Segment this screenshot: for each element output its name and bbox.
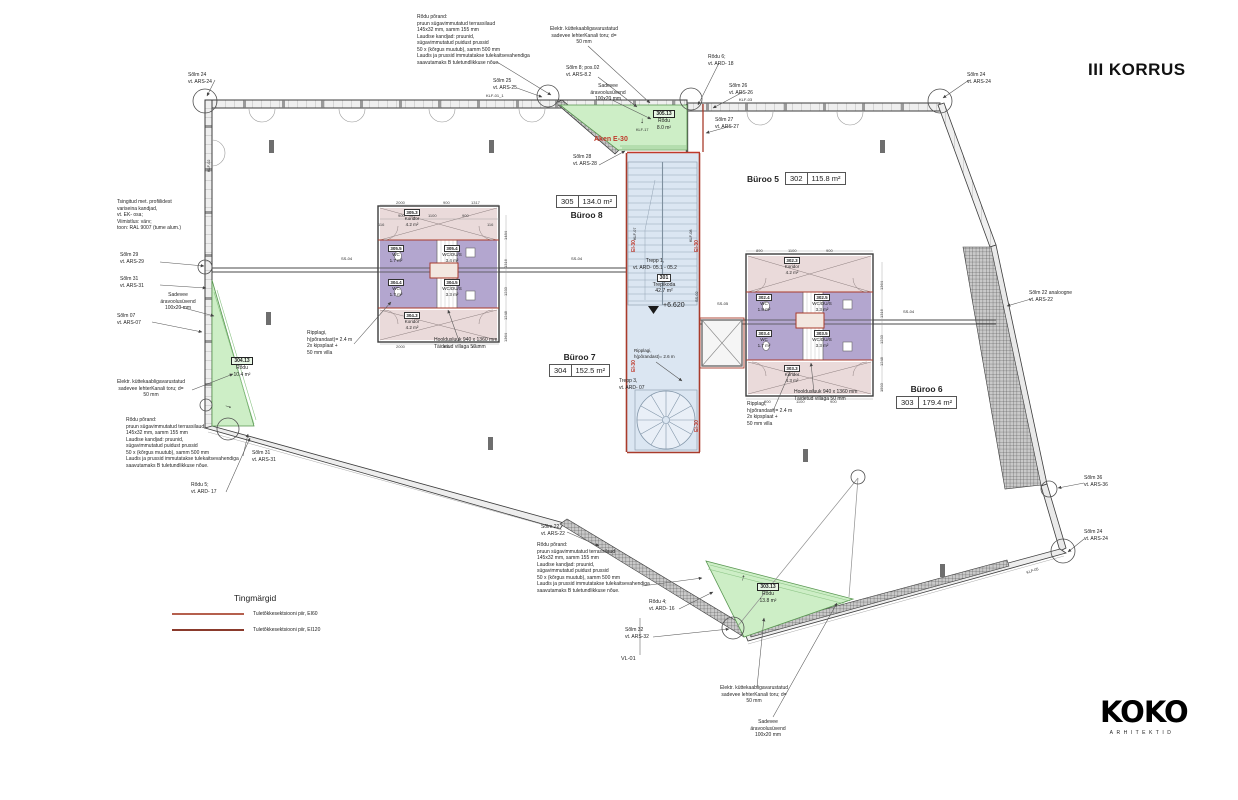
dimension-value: 116 bbox=[487, 222, 493, 227]
annotation-note: Sõlm 31 vt. ARS-31 bbox=[252, 450, 276, 463]
core-room-area: 4.2 m² bbox=[406, 222, 419, 227]
dimension-value: 1316 bbox=[503, 259, 508, 268]
dimension-value: 900 bbox=[462, 213, 469, 218]
dimension-value: 900 bbox=[764, 399, 771, 404]
core-room-tag: 305.3 Koridor 4.2 m² bbox=[390, 209, 434, 227]
dimension-value: 1248 bbox=[503, 311, 508, 320]
dimension-value: 900 bbox=[826, 248, 833, 253]
annotation-note: Aken E-30 bbox=[594, 135, 628, 144]
room-number-area-box: 305 134.0 m² bbox=[556, 195, 617, 208]
core-room-area: 1.7 m² bbox=[390, 258, 403, 263]
core-room-tag: 302.4 WC 1.8 m² bbox=[742, 294, 786, 312]
legend-line-swatch bbox=[172, 613, 244, 615]
annotation-note: EI-30 bbox=[631, 240, 638, 252]
annotation-note: Sõlm 22 analoogne vt. ARS-22 bbox=[1029, 290, 1072, 303]
annotation-note: SS-04 bbox=[571, 256, 582, 261]
core-room-tag: 305.4 WC/DU/S 3.4 m² bbox=[430, 245, 474, 263]
core-room-tag: 302.3 Koridor 4.2 m² bbox=[770, 257, 814, 275]
annotation-note: Sõlm 26 vt. ARS-26 bbox=[729, 83, 753, 96]
annotation-note: Sõlm 36 vt. ARS-36 bbox=[1084, 475, 1108, 488]
room-number: 302 bbox=[786, 173, 808, 184]
room-name: Büroo 5 bbox=[747, 174, 779, 184]
core-room-area: 3.3 m² bbox=[446, 292, 459, 297]
annotation-note: Tsingitud met. profiilidest variseina ka… bbox=[117, 199, 222, 232]
room-number: 303 bbox=[897, 397, 919, 408]
annotation-note: Trepp 3, vt. ARD- 07 bbox=[619, 378, 645, 391]
room-number: 305 bbox=[557, 196, 579, 207]
core-room-tag: 305.5 WC 1.7 m² bbox=[374, 245, 418, 263]
annotation-note: Sadevee äravoolusüvend 100x20 mm bbox=[576, 83, 640, 103]
legend-items: Tuletõkkesektsiooni piir, EI60 Tuletõkke… bbox=[172, 611, 320, 633]
annotation-note: Ripplagi, h(põrandast)= 2.4 m 2x kipspla… bbox=[307, 330, 352, 356]
core-room-tag: 304.3 Koridor 4.2 m² bbox=[390, 312, 434, 330]
dimension-value: 1248 bbox=[879, 357, 884, 366]
balcony-area: 8.0 m² bbox=[657, 125, 671, 131]
balcony-tag: 303.13 Rõdu 13.8 m² bbox=[748, 583, 788, 604]
core-room-tag: 301 Trepikoda 42.7 m² bbox=[642, 274, 686, 295]
annotation-note: Rõdu 5; vt. ARD- 17 bbox=[191, 482, 217, 495]
logo-subtitle: ARHITEKTID bbox=[1100, 730, 1184, 736]
room-tag: Büroo 8 305 134.0 m² bbox=[556, 195, 617, 220]
core-room-number: 302.3 bbox=[784, 257, 800, 264]
room-name: Büroo 7 bbox=[564, 352, 596, 362]
core-room-number: 305.3 bbox=[404, 209, 420, 216]
dimension-value: 1100 bbox=[788, 248, 797, 253]
annotation-note: Elektr. küttekaabligavarustatud sadevee … bbox=[528, 26, 640, 46]
elevator bbox=[700, 318, 744, 368]
balcony-area: 13.8 m² bbox=[760, 598, 777, 604]
annotation-note: Sõlm 29 vt. ARS-29 bbox=[120, 252, 144, 265]
dimension-value: 1100 bbox=[796, 399, 805, 404]
dimension-value: 2000 bbox=[396, 200, 405, 205]
annotation-note: ↓ bbox=[640, 116, 644, 126]
annotation-note: Ripplagi, h(põrandast)= 2.4 m 2x kipspla… bbox=[747, 401, 792, 427]
core-room-tag: 303.5 WC/DU/S 3.3 m² bbox=[800, 330, 844, 348]
core-room-area: 1.7 m² bbox=[758, 343, 771, 348]
room-number-area-box: 304 152.5 m² bbox=[549, 364, 610, 377]
logo: KOKO ARHITEKTID bbox=[1100, 698, 1184, 736]
page-title: III KORRUS bbox=[1088, 60, 1186, 80]
door-arcs bbox=[212, 109, 863, 166]
dimension-value: 1317 bbox=[471, 344, 480, 349]
annotation-note: SS-05 bbox=[717, 301, 728, 306]
legend-line-swatch bbox=[172, 629, 244, 631]
core-room-tag: 303.3 Koridor 4.3 m² bbox=[770, 365, 814, 383]
dimension-value: 116 bbox=[378, 222, 384, 227]
annotation-note: Rõdu 4; vt. ARD- 16 bbox=[649, 599, 675, 612]
shower-icon bbox=[843, 300, 852, 309]
room-tag: Büroo 5 302 115.8 m² bbox=[747, 172, 846, 185]
core-room-number: 303.3 bbox=[784, 365, 800, 372]
annotation-note: Rõdu põrand: pruun sügavimmutatud terras… bbox=[537, 542, 689, 594]
annotation-note: KLF-01_1 bbox=[486, 93, 504, 98]
room-number: 304 bbox=[550, 365, 572, 376]
dimension-value: 900 bbox=[443, 344, 450, 349]
core-room-area: 4.2 m² bbox=[406, 325, 419, 330]
annotation-note: Trepp 1, vt. ARD- 05.1 - 05.2 bbox=[622, 258, 688, 271]
core-room-area: 4.2 m² bbox=[786, 270, 799, 275]
room-name: Büroo 6 bbox=[911, 384, 943, 394]
annotation-note: EI-30 bbox=[694, 420, 701, 432]
annotation-note: Sõlm 31 vt. ARS-31 bbox=[120, 276, 144, 289]
annotation-note: KLF-03 bbox=[739, 97, 752, 102]
balcony-number: 303.13 bbox=[757, 583, 778, 591]
annotation-note: KLF-02 bbox=[207, 160, 212, 172]
annotation-note: SS-02 bbox=[695, 291, 700, 302]
annotation-note: Sadevee äravoolusüvend 100x20 mm bbox=[736, 719, 800, 739]
core-room-number: 304.5 bbox=[444, 279, 460, 286]
core-room-number: 301 bbox=[657, 274, 671, 282]
core-room-area: 4.3 m² bbox=[786, 378, 799, 383]
annotation-note: KLF-17 bbox=[636, 128, 648, 133]
balcony-number: 304.13 bbox=[231, 357, 252, 365]
annotation-note: EI-30 bbox=[694, 240, 701, 252]
legend: Tingmärgid Tuletõkkesektsiooni piir, EI6… bbox=[172, 593, 320, 643]
annotation-note: Elektr. küttekaabligavarustatud sadevee … bbox=[95, 379, 207, 399]
dimension-value: 1364 bbox=[879, 281, 884, 290]
legend-title: Tingmärgid bbox=[234, 593, 320, 603]
core-room-number: 303.5 bbox=[814, 330, 830, 337]
balcony-tag: 304.13 Rõdu 10.4 m² bbox=[222, 357, 262, 378]
floor-plan-drawing bbox=[0, 0, 1238, 800]
annotation-note: SS-04 bbox=[903, 309, 914, 314]
dimension-value: 1593 bbox=[879, 383, 884, 392]
dimension-value: 900 bbox=[443, 200, 450, 205]
dimension-value: 1484 bbox=[503, 231, 508, 240]
balcony-tag: 305.13 Rõdu 8.0 m² bbox=[644, 110, 684, 131]
room-tag: Büroo 6 303 179.4 m² bbox=[896, 384, 957, 409]
dimension-value: 1100 bbox=[428, 213, 437, 218]
annotation-note: Sõlm 25 vt. ARS-25 bbox=[493, 78, 517, 91]
shaft-access bbox=[796, 313, 824, 328]
annotation-note: Ripplagi, h(põrandast)= 2.6 m bbox=[634, 348, 675, 360]
room-name: Büroo 8 bbox=[571, 210, 603, 220]
annotation-note: KLF-07 bbox=[633, 228, 638, 240]
core-room-number: 304.3 bbox=[404, 312, 420, 319]
room-area: 152.5 m² bbox=[572, 365, 610, 376]
dimension-value: 900 bbox=[830, 399, 837, 404]
annotation-note: Sõlm 22 vt. ARS-22 bbox=[541, 524, 565, 537]
annotation-note: KLF-08 bbox=[689, 230, 694, 242]
core-room-area: 3.3 m² bbox=[816, 343, 829, 348]
balcony-number: 305.13 bbox=[653, 110, 674, 118]
dimension-value: 890 bbox=[756, 248, 763, 253]
room-tag: Büroo 7 304 152.5 m² bbox=[549, 352, 610, 377]
legend-item: Tuletõkkesektsiooni piir, EI60 bbox=[172, 611, 320, 617]
core-room-number: 305.5 bbox=[388, 245, 404, 252]
annotation-note: Sõlm 27 vt. ARS-27 bbox=[715, 117, 739, 130]
annotation-note: EI-30 bbox=[631, 360, 638, 372]
dimension-value: 1316 bbox=[879, 309, 884, 318]
logo-wordmark: KOKO bbox=[1100, 698, 1184, 727]
annotation-note: Sõlm 07 vt. ARS-07 bbox=[117, 313, 141, 326]
legend-item-label: Tuletõkkesektsiooni piir, EI120 bbox=[253, 627, 320, 633]
annotation-note: VL-01 bbox=[621, 656, 636, 663]
shaft-access bbox=[430, 263, 458, 278]
room-area: 134.0 m² bbox=[579, 196, 617, 207]
room-area: 179.4 m² bbox=[919, 397, 957, 408]
annotation-note: Sõlm 24 vt. ARS-24 bbox=[188, 72, 212, 85]
core-room-area: 42.7 m² bbox=[655, 288, 673, 294]
annotation-note: +6.620 bbox=[663, 301, 685, 310]
room-area: 115.8 m² bbox=[808, 173, 845, 184]
core-room-tag: 303.4 WC 1.7 m² bbox=[742, 330, 786, 348]
dimension-value: 1364 bbox=[503, 333, 508, 342]
dimension-value: 1233 bbox=[503, 287, 508, 296]
core-room-number: 302.4 bbox=[756, 294, 772, 301]
balcony-area: 10.4 m² bbox=[234, 372, 251, 378]
legend-item-label: Tuletõkkesektsiooni piir, EI60 bbox=[253, 611, 318, 617]
annotation-note: SS-04 bbox=[341, 256, 352, 261]
core-room-area: 1.7 m² bbox=[390, 292, 403, 297]
dimension-value: 900 bbox=[398, 213, 405, 218]
core-room-tag: 304.4 WC 1.7 m² bbox=[374, 279, 418, 297]
core-room-area: 3.4 m² bbox=[446, 258, 459, 263]
room-number-area-box: 302 115.8 m² bbox=[785, 172, 846, 185]
core-room-number: 302.5 bbox=[814, 294, 830, 301]
legend-item: Tuletõkkesektsiooni piir, EI120 bbox=[172, 627, 320, 633]
dimension-value: 1317 bbox=[471, 200, 480, 205]
core-room-tag: 302.5 WC/DU/S 3.3 m² bbox=[800, 294, 844, 312]
annotation-note: Sõlm 28 vt. ARS-28 bbox=[573, 154, 597, 167]
dimension-value: 2000 bbox=[396, 344, 405, 349]
core-room-area: 3.3 m² bbox=[816, 307, 829, 312]
annotation-note: Sõlm 32 vt. ARS-32 bbox=[625, 627, 649, 640]
shower-icon bbox=[843, 342, 852, 351]
annotation-note: Rõdu 6; vt. ARD- 18 bbox=[708, 54, 734, 67]
annotation-note: Sõlm 24 vt. ARS-24 bbox=[967, 72, 991, 85]
annotation-note: Sadevee äravoolusüvend 100x20 mm bbox=[146, 292, 210, 312]
dimension-value: 1233 bbox=[879, 335, 884, 344]
core-room-area: 1.8 m² bbox=[758, 307, 771, 312]
floor-plan-canvas: III KORRUS KOKO ARHITEKTID Tingmärgid Tu… bbox=[0, 0, 1238, 800]
room-number-area-box: 303 179.4 m² bbox=[896, 396, 957, 409]
annotation-note: Elektr. küttekaabligavarustatud sadevee … bbox=[698, 685, 810, 705]
core-room-number: 304.4 bbox=[388, 279, 404, 286]
core-room-number: 303.4 bbox=[756, 330, 772, 337]
core-room-number: 305.4 bbox=[444, 245, 460, 252]
annotation-note: Sõlm 8; pos.02 vt. ARS-8.2 bbox=[566, 65, 599, 78]
core-room-tag: 304.5 WC/DU/S 3.3 m² bbox=[430, 279, 474, 297]
annotation-note: Sõlm 24 vt. ARS-24 bbox=[1084, 529, 1108, 542]
